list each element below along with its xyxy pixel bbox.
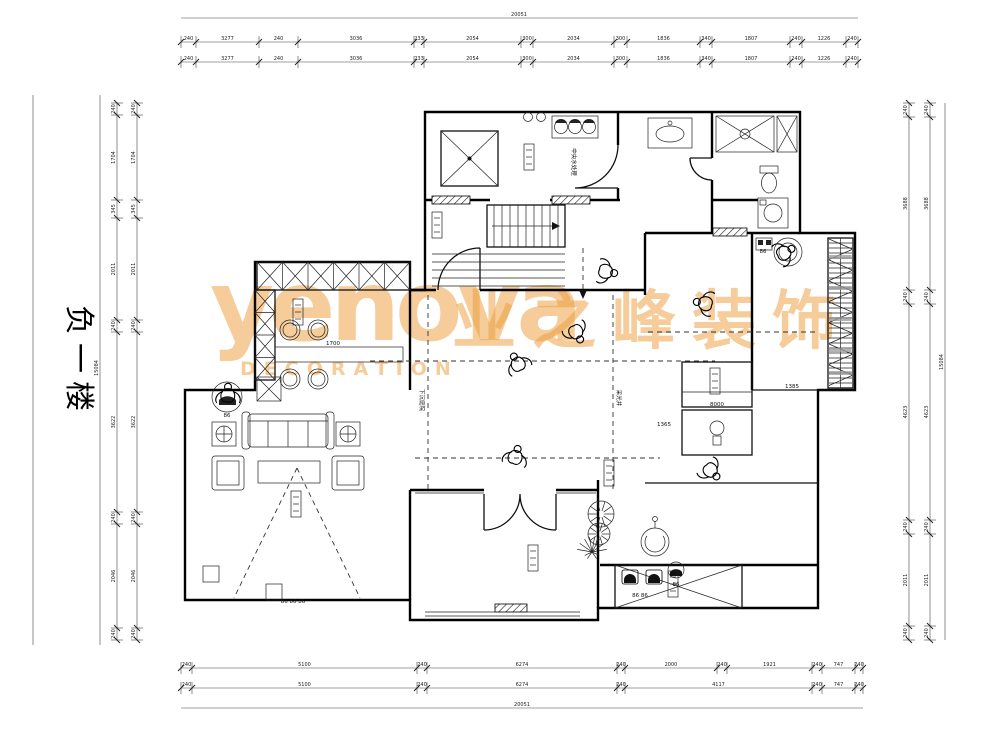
svg-text:86: 86 [673,582,680,588]
svg-text:20051: 20051 [511,12,527,18]
svg-text:340: 340 [701,36,711,42]
svg-text:240: 240 [924,292,930,302]
svg-text:747: 747 [834,662,844,668]
svg-text:240: 240 [812,662,822,668]
svg-text:2000: 2000 [665,662,678,668]
svg-text:1921: 1921 [763,662,776,668]
svg-text:1836: 1836 [657,56,670,62]
svg-text:240: 240 [903,292,909,302]
void-right-label: 采光井 [615,390,623,407]
svg-text:747: 747 [834,682,844,688]
svg-text:300: 300 [522,56,532,62]
svg-text:240: 240 [903,105,909,115]
svg-text:4117: 4117 [712,682,725,688]
equipment-room: 中央水处理 [441,113,598,187]
svg-text:240: 240 [131,104,137,114]
svg-text:3688: 3688 [903,197,909,210]
svg-text:1385: 1385 [785,384,799,390]
svg-text:340: 340 [701,56,711,62]
svg-text:345: 345 [131,204,137,214]
svg-text:4623: 4623 [903,406,909,419]
svg-text:4623: 4623 [924,406,930,419]
svg-text:3688: 3688 [924,197,930,210]
svg-text:2034: 2034 [567,36,580,42]
interior-walls [410,112,855,616]
svg-text:20051: 20051 [514,702,530,708]
svg-text:240: 240 [924,105,930,115]
svg-text:3277: 3277 [221,56,234,62]
svg-text:3622: 3622 [111,416,117,429]
svg-text:1807: 1807 [745,36,758,42]
svg-text:300: 300 [616,36,626,42]
void-area: 下沉庭院 采光井 [370,295,816,490]
svg-text:240: 240 [182,682,192,688]
svg-text:3622: 3622 [131,416,137,429]
svg-text:240: 240 [616,662,626,668]
svg-text:15084: 15084 [939,354,945,370]
svg-text:240: 240 [274,36,284,42]
svg-text:240: 240 [847,36,857,42]
right-wing [682,238,853,455]
svg-text:240: 240 [717,662,727,668]
svg-text:240: 240 [184,36,194,42]
svg-text:5100: 5100 [298,682,311,688]
title-block: 负一楼 [33,95,96,645]
svg-text:1807: 1807 [745,56,758,62]
svg-text:240: 240 [131,321,137,331]
svg-text:6274: 6274 [516,682,529,688]
svg-text:240: 240 [812,682,822,688]
svg-text:8000: 8000 [710,402,724,408]
svg-text:345: 345 [111,204,117,214]
svg-text:240: 240 [111,629,117,639]
svg-text:233: 233 [414,36,424,42]
svg-text:86: 86 [760,249,767,255]
svg-text:240: 240 [182,662,192,668]
svg-text:240: 240 [184,56,194,62]
floor-plan-page: yenova 业之峰装饰 DECORATION 2403277240303623… [0,0,1000,750]
svg-text:86: 86 [224,413,231,419]
void-left-label: 下沉庭院 [418,389,426,412]
detail-patterns [255,144,852,597]
svg-text:2054: 2054 [466,36,479,42]
svg-text:1836: 1836 [657,36,670,42]
svg-text:2054: 2054 [466,56,479,62]
svg-text:5100: 5100 [298,662,311,668]
svg-text:240: 240 [791,56,801,62]
svg-text:3036: 3036 [350,56,363,62]
svg-text:240: 240 [274,56,284,62]
svg-text:1226: 1226 [818,56,831,62]
svg-text:240: 240 [111,104,117,114]
svg-text:240: 240 [903,628,909,638]
svg-text:2046: 2046 [131,570,137,583]
svg-text:240: 240 [791,36,801,42]
svg-text:2011: 2011 [131,263,137,276]
svg-text:240: 240 [111,513,117,523]
svg-text:240: 240 [417,682,427,688]
svg-text:2034: 2034 [567,56,580,62]
svg-text:300: 300 [616,56,626,62]
svg-text:240: 240 [847,56,857,62]
svg-text:240: 240 [924,628,930,638]
svg-text:240: 240 [616,682,626,688]
svg-text:86 86: 86 86 [632,593,648,599]
svg-text:2011: 2011 [924,574,930,587]
bathroom [648,116,797,228]
floor-plan-canvas: 2403277240303623320543002034300183634018… [0,0,1000,750]
svg-text:240: 240 [131,629,137,639]
svg-text:240: 240 [903,522,909,532]
svg-text:240: 240 [924,522,930,532]
living-room [203,412,364,600]
svg-text:2011: 2011 [111,263,117,276]
svg-text:240: 240 [417,662,427,668]
svg-text:2046: 2046 [111,570,117,583]
svg-text:1704: 1704 [111,151,117,164]
svg-text:6274: 6274 [516,662,529,668]
svg-text:3036: 3036 [350,36,363,42]
svg-text:2011: 2011 [903,574,909,587]
equipment-room-label: 中央水处理 [570,148,578,176]
svg-text:86 86 86: 86 86 86 [281,599,306,605]
svg-text:240: 240 [131,513,137,523]
annotation-texts: 8686 868686 86 86861700800013651385 [224,249,800,605]
svg-text:240: 240 [111,321,117,331]
svg-text:233: 233 [414,56,424,62]
svg-text:240: 240 [854,662,864,668]
page-title: 负一楼 [61,305,96,419]
svg-text:1700: 1700 [326,341,340,347]
svg-text:1226: 1226 [818,36,831,42]
svg-text:1365: 1365 [657,422,671,428]
svg-text:1704: 1704 [131,151,137,164]
outer-walls [185,112,855,620]
svg-text:3277: 3277 [221,36,234,42]
svg-text:240: 240 [854,682,864,688]
svg-text:300: 300 [522,36,532,42]
